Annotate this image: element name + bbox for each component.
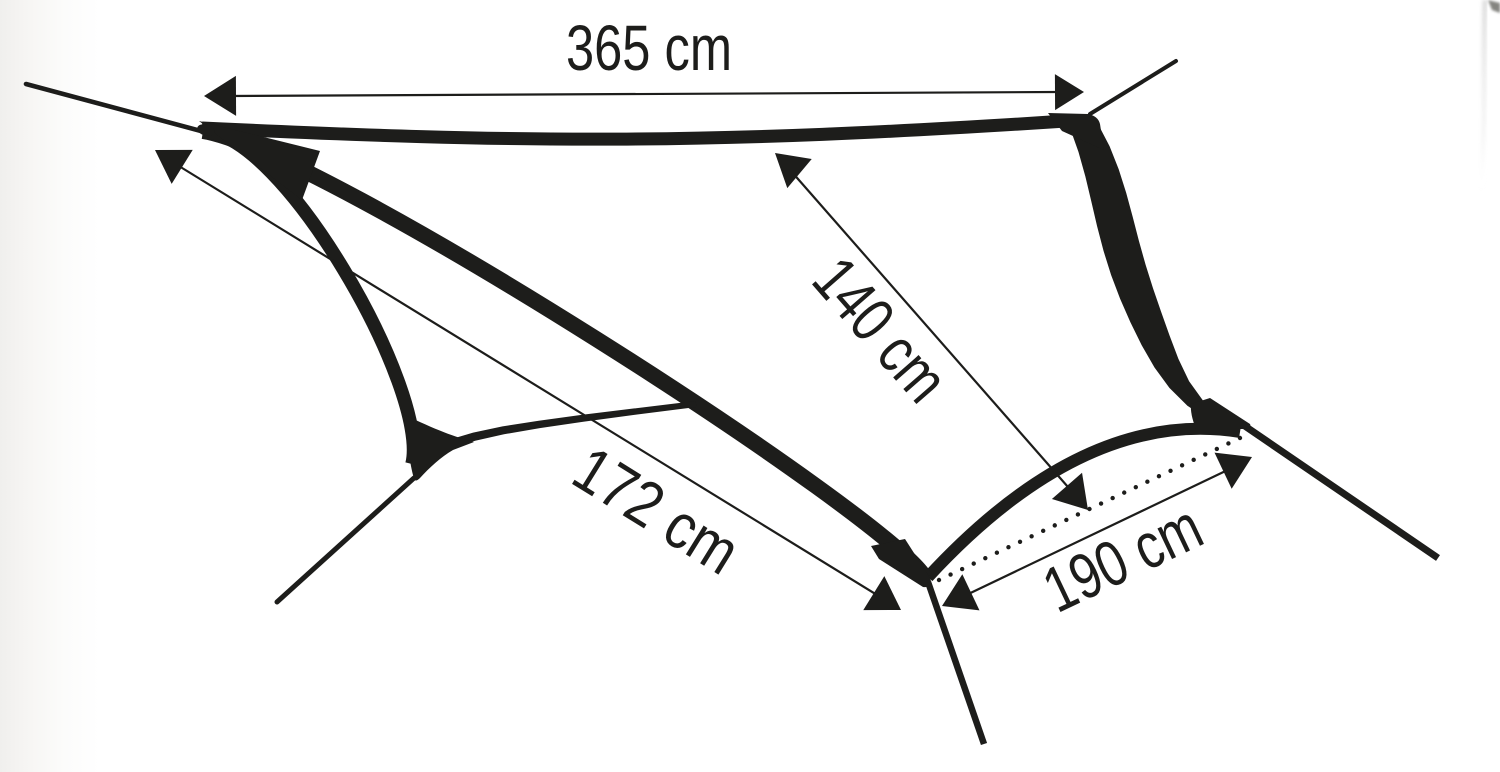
svg-text:365 cm: 365 cm <box>566 12 732 84</box>
